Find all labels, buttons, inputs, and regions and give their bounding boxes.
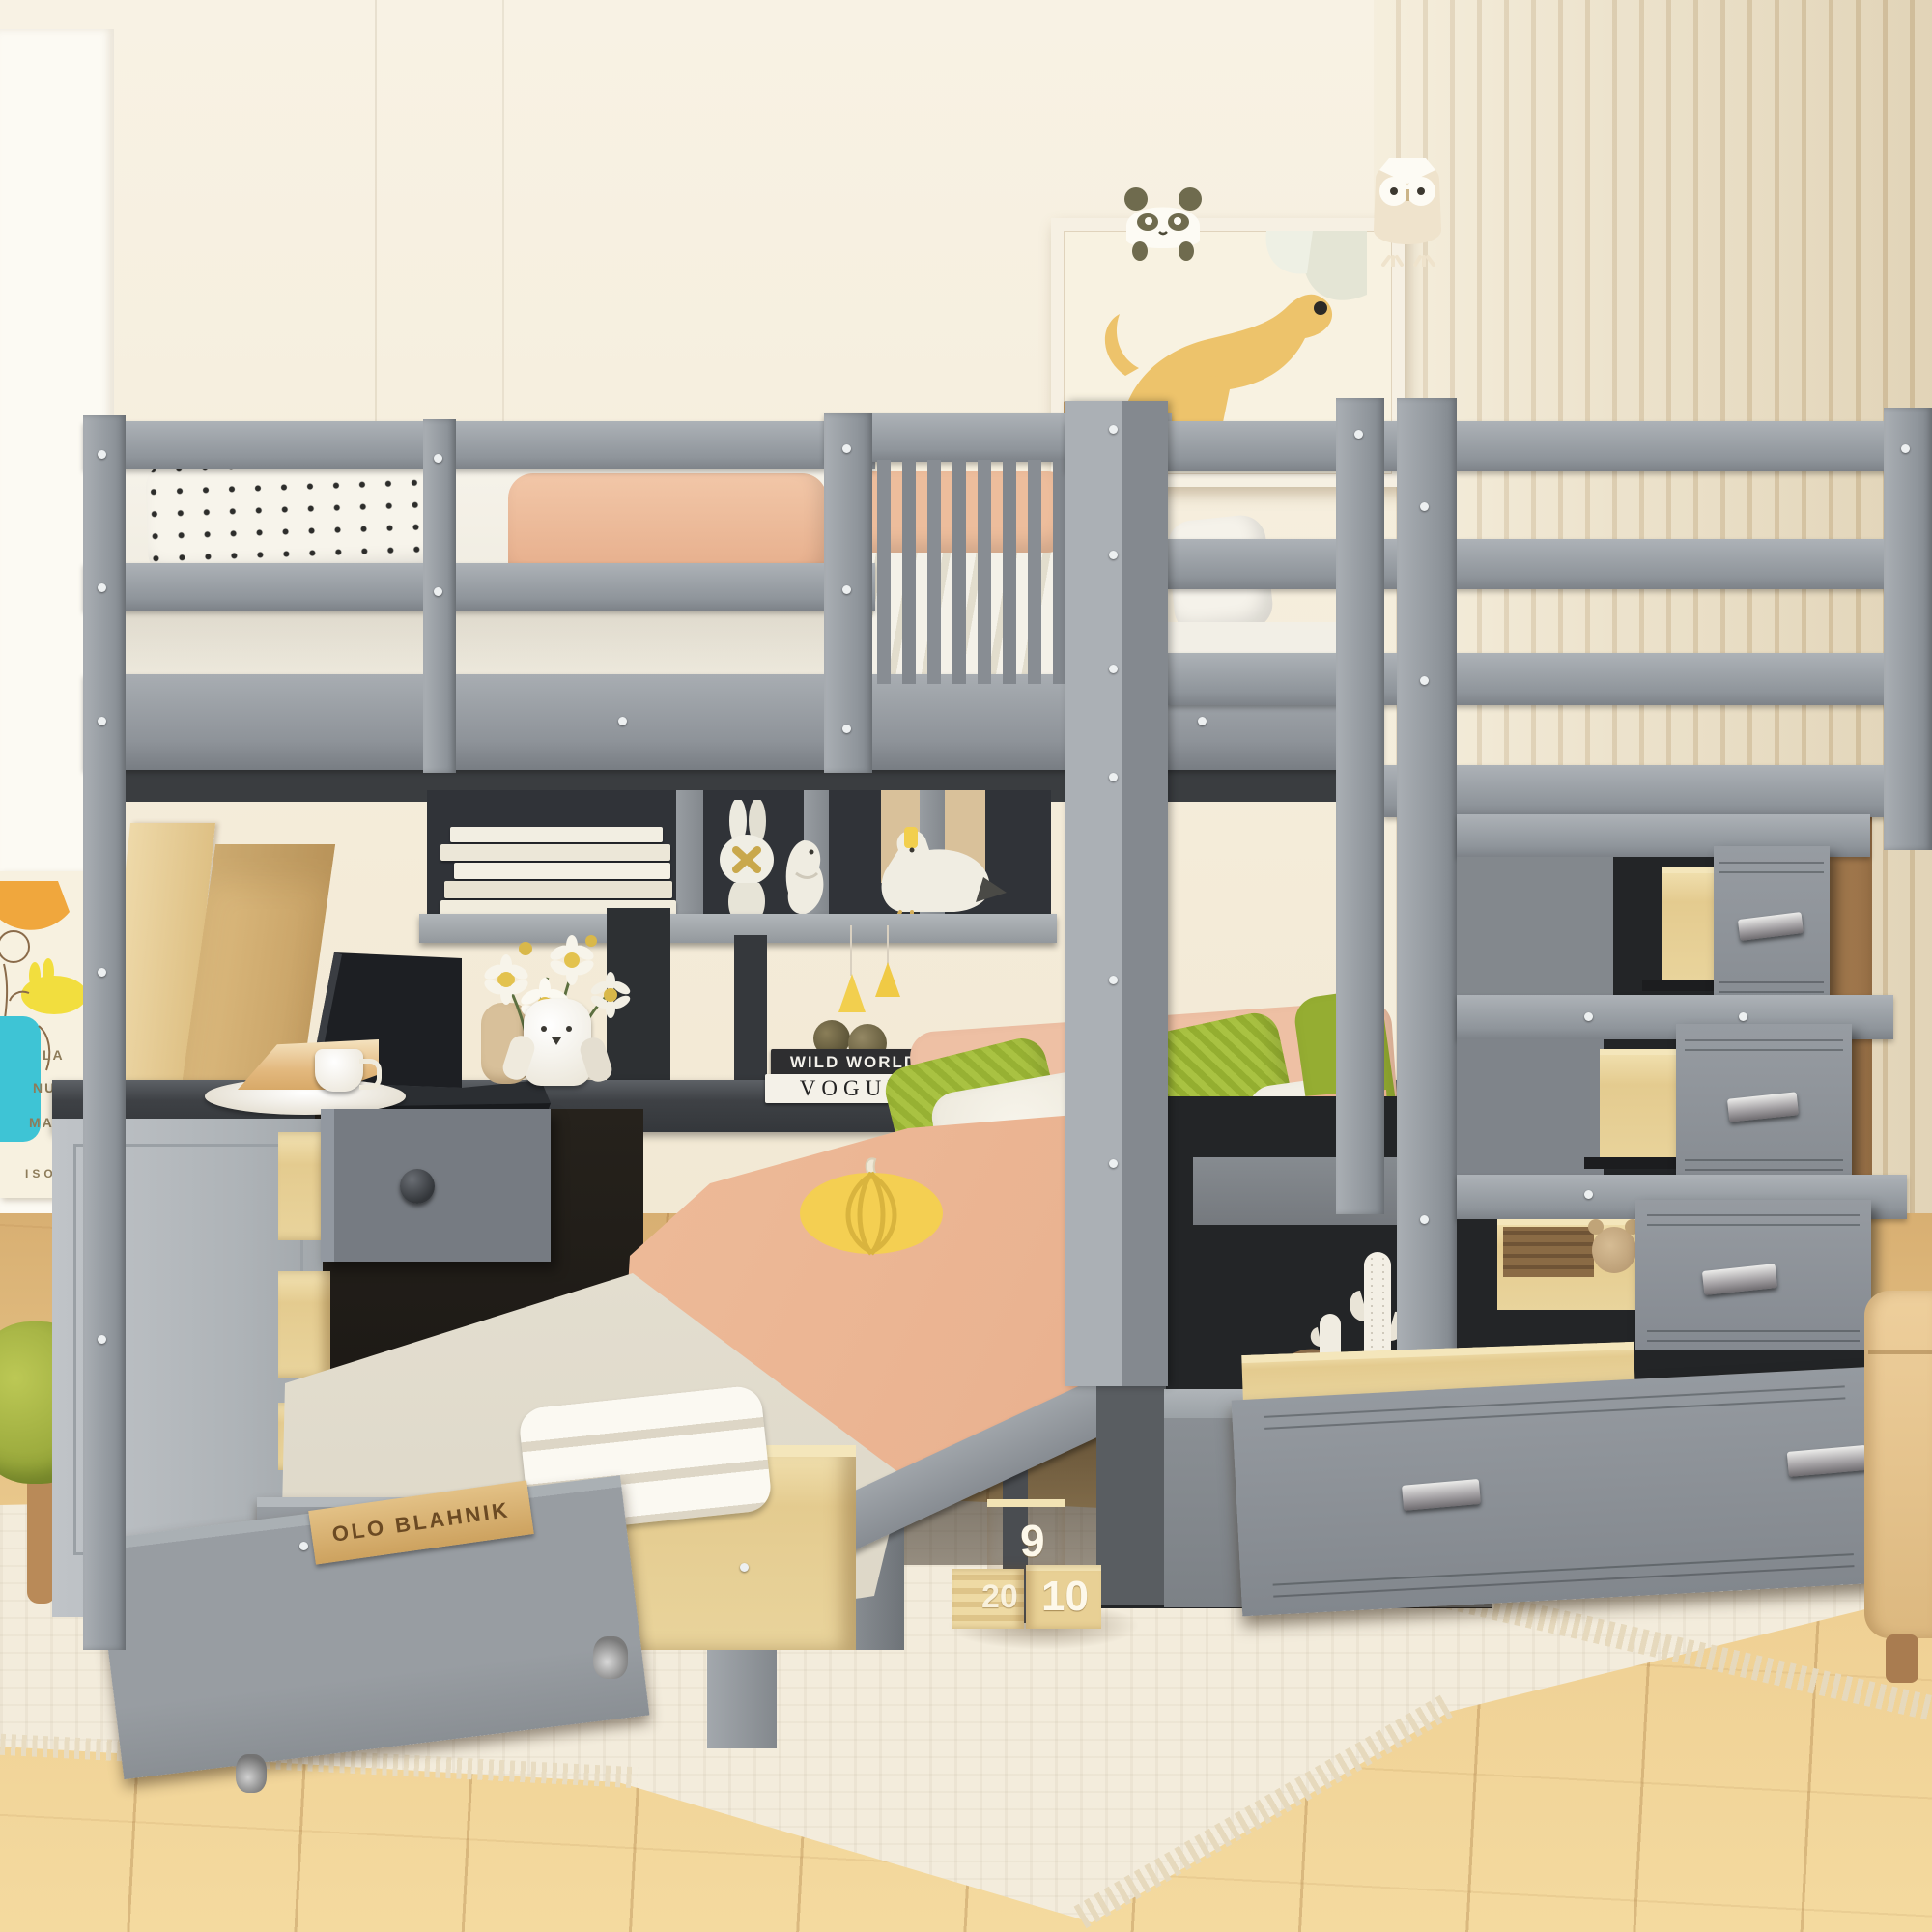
drawer-box — [1600, 1049, 1677, 1169]
screw-cap — [1901, 444, 1910, 453]
storage-drawer-front-1 — [1714, 846, 1830, 1009]
bird-figurine — [779, 835, 831, 920]
drawer-groove — [1685, 1049, 1843, 1051]
baluster — [978, 460, 991, 684]
number-block-20: 20 — [952, 1569, 1024, 1629]
desk-drawer-front — [321, 1109, 551, 1262]
screw-cap — [434, 587, 442, 596]
right-guard-rail — [1167, 539, 1932, 589]
pumpkin-pillow — [796, 1155, 947, 1256]
baluster — [1028, 460, 1041, 684]
screw-cap — [98, 583, 106, 592]
screw-cap — [1109, 551, 1118, 559]
vase-eye — [566, 1026, 572, 1032]
screw-cap — [1109, 1159, 1118, 1168]
screw-cap — [1739, 1012, 1747, 1021]
screw-cap — [1420, 676, 1429, 685]
guard-rail-top — [83, 421, 875, 469]
drawer-groove — [1685, 1039, 1843, 1041]
baluster — [1003, 460, 1016, 684]
loft-post-left — [83, 415, 126, 1650]
storage-drawer-front-4 — [1232, 1367, 1888, 1617]
screw-cap — [1109, 773, 1118, 781]
screw-cap — [98, 1335, 106, 1344]
upper-duvet-fold-shadow — [120, 599, 875, 676]
screw-cap — [842, 585, 851, 594]
screw-cap — [1584, 1190, 1593, 1199]
tassel-yellow — [838, 974, 866, 1012]
nightstand-seam — [1868, 1350, 1932, 1354]
right-guard-rail — [1065, 421, 1932, 471]
rail-divider-post — [423, 419, 456, 773]
drawer-handle — [1702, 1264, 1777, 1295]
drawer-handle — [1787, 1445, 1868, 1477]
stored-books-stack — [1503, 1227, 1594, 1277]
screw-cap — [842, 724, 851, 733]
tassel-yellow — [875, 962, 900, 997]
guard-rail-mid — [83, 563, 875, 611]
far-right-post — [1884, 408, 1932, 850]
coffee-cup — [315, 1049, 363, 1092]
owl-figure — [1366, 141, 1449, 267]
nightstand-leg — [1886, 1634, 1918, 1683]
drawer-groove — [1719, 862, 1824, 864]
screw-cap — [1109, 665, 1118, 673]
caster-wheel — [236, 1754, 267, 1793]
block-number: 10 — [1041, 1573, 1089, 1621]
screw-cap — [1420, 1215, 1429, 1224]
block-number: 20 — [981, 1578, 1018, 1616]
open-drawer-box — [278, 1271, 330, 1378]
drawer-groove — [1719, 871, 1824, 873]
drawer-groove — [1685, 1159, 1843, 1161]
seagull-plush — [862, 821, 1007, 922]
teddy-ear — [1588, 1219, 1604, 1235]
drawer-handle — [1402, 1479, 1481, 1511]
screw-cap — [1420, 502, 1429, 511]
book — [440, 844, 670, 861]
screw-cap — [299, 1542, 308, 1550]
stair-side-step-panel — [1457, 857, 1615, 998]
baluster — [952, 460, 966, 684]
screw-cap — [1109, 976, 1118, 984]
drawer-groove — [1647, 1340, 1860, 1342]
book — [450, 827, 663, 842]
screw-cap — [740, 1563, 749, 1572]
drawer-handle — [1727, 1092, 1799, 1122]
poster-line1: LA — [43, 1047, 65, 1063]
polka-dot-pillow — [145, 453, 452, 580]
screw-cap — [98, 450, 106, 459]
drawer-knob — [400, 1169, 435, 1204]
screw-cap — [1354, 430, 1363, 439]
screw-cap — [842, 444, 851, 453]
shelf-divider — [676, 790, 703, 920]
drawer-groove — [1647, 1330, 1860, 1332]
screw-cap — [1109, 425, 1118, 434]
loft-front-post — [1065, 401, 1168, 1386]
trundle-book-label: OLO BLAHNIK — [330, 1497, 512, 1548]
storage-drawer-front-2 — [1676, 1024, 1852, 1186]
right-guard-rail — [1383, 765, 1932, 817]
screw-cap — [618, 717, 627, 725]
drawer-groove — [1719, 991, 1824, 993]
hutch-upright — [734, 935, 767, 1090]
loft-right-post — [1336, 398, 1384, 1214]
baluster — [902, 460, 916, 684]
drawer-groove — [1719, 981, 1824, 983]
baluster — [877, 460, 891, 684]
book — [444, 881, 672, 898]
vase-nose — [552, 1037, 561, 1045]
block-number: 9 — [1020, 1515, 1045, 1567]
book — [454, 863, 670, 879]
drawer-groove — [1685, 1169, 1843, 1171]
tassel-string — [850, 925, 852, 976]
cup-handle — [359, 1059, 382, 1090]
screw-cap — [98, 968, 106, 977]
caster-wheel — [593, 1636, 628, 1679]
tassel-string — [887, 925, 889, 964]
panda-figure — [1119, 184, 1207, 265]
drawer-groove — [1647, 1214, 1860, 1216]
drawer-slide — [1584, 1157, 1681, 1169]
number-block-10: 10 — [1026, 1565, 1101, 1629]
baluster — [927, 460, 941, 684]
right-guard-rail — [1167, 653, 1932, 705]
screw-cap — [1584, 1012, 1593, 1021]
storage-drawer-front-3 — [1635, 1200, 1871, 1356]
bedroom-photo-scene: LA NUEVA MASC ISOL — [0, 0, 1932, 1932]
drawer-groove — [1647, 1224, 1860, 1226]
drawer-handle — [1738, 912, 1804, 941]
screw-cap — [434, 454, 442, 463]
screw-cap — [98, 717, 106, 725]
wooden-nightstand — [1864, 1291, 1932, 1638]
vase-eye — [541, 1026, 547, 1032]
baluster — [1053, 460, 1066, 684]
screw-cap — [1198, 717, 1207, 725]
stair-side-step-panel — [1457, 1039, 1604, 1177]
bunny-figurine — [715, 800, 779, 922]
white-book-stack — [440, 827, 676, 920]
